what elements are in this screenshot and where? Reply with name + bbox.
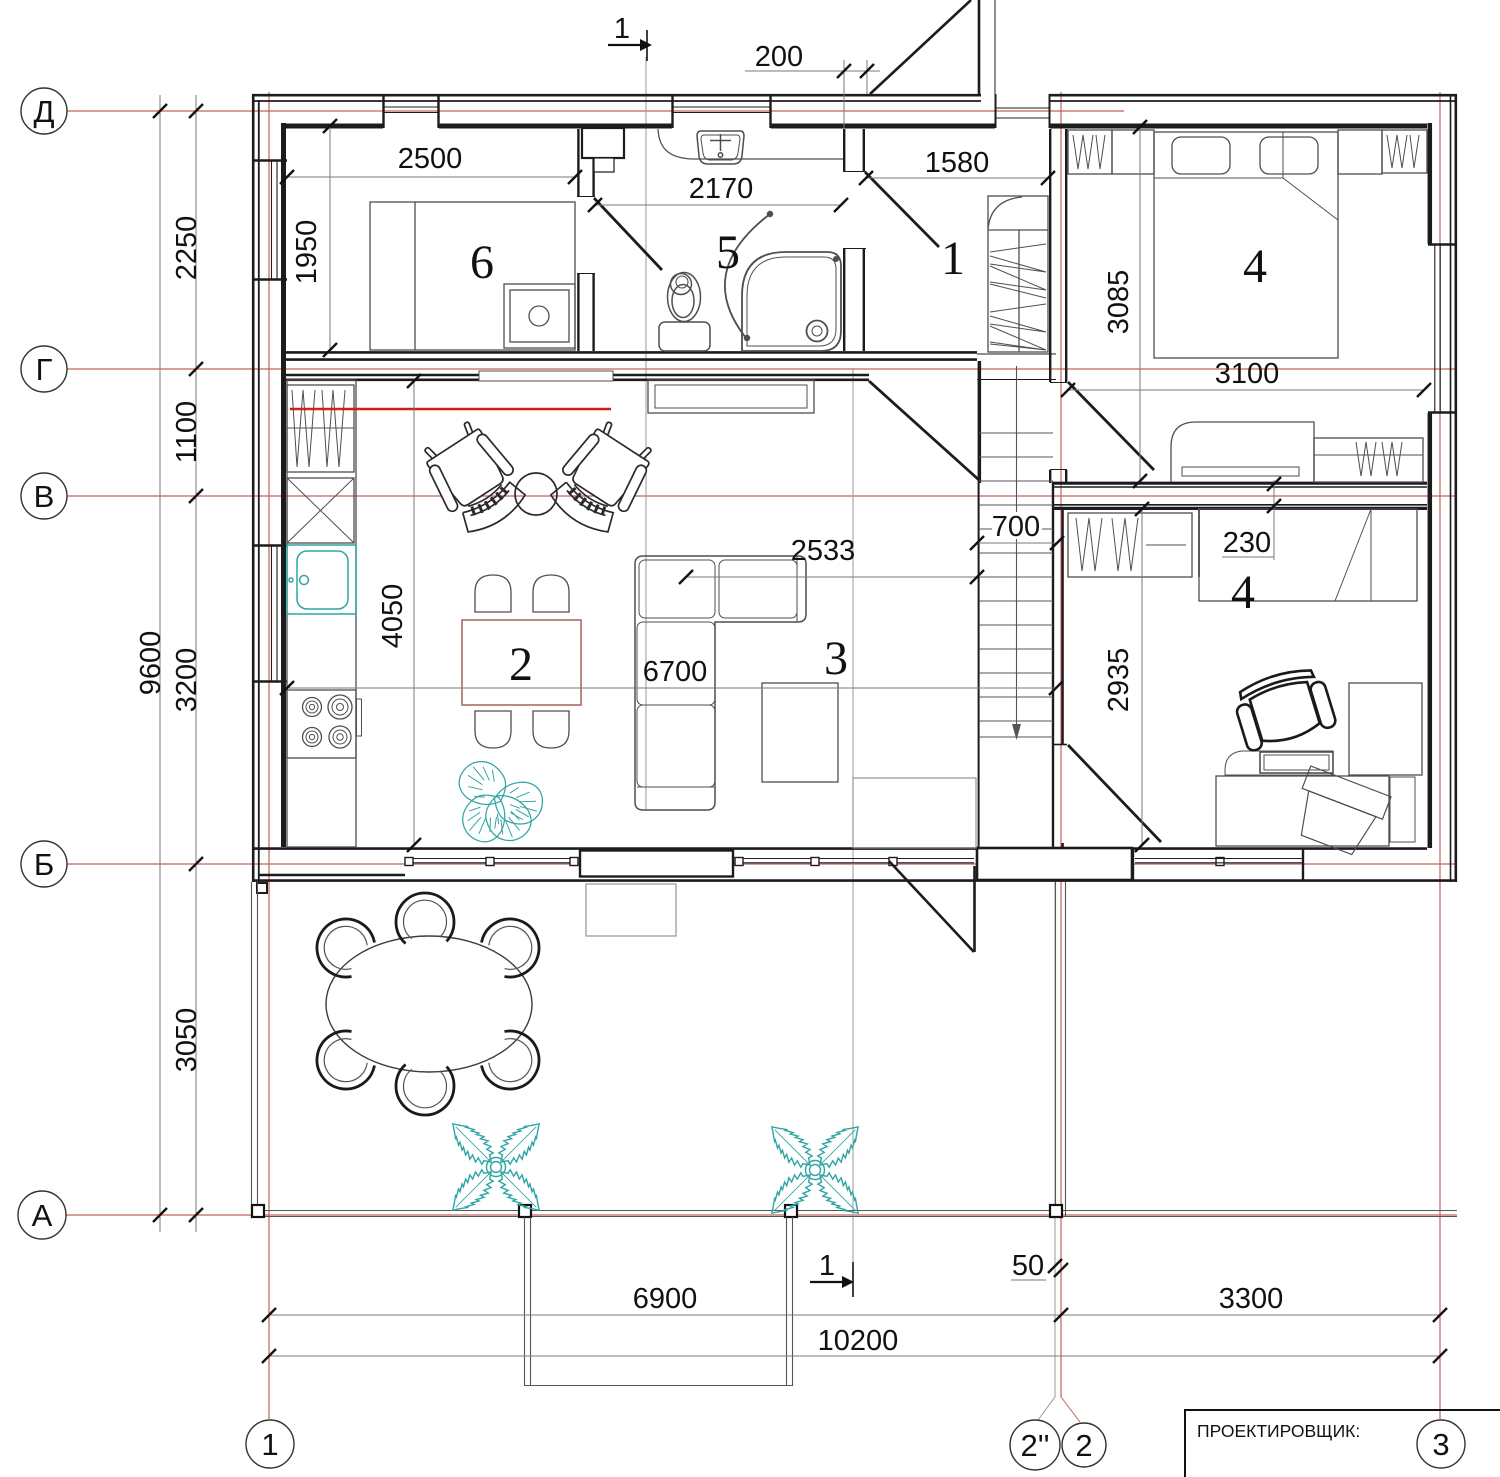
svg-text:5: 5 [716,226,740,279]
svg-text:1: 1 [614,13,630,45]
svg-text:Б: Б [34,847,54,882]
svg-text:1100: 1100 [171,401,203,463]
svg-text:3200: 3200 [171,648,203,713]
svg-text:3: 3 [824,632,848,685]
svg-text:6900: 6900 [633,1283,698,1315]
svg-text:Д: Д [34,94,55,129]
svg-text:9600: 9600 [135,631,167,696]
svg-text:2533: 2533 [791,535,856,567]
svg-text:ПРОЕКТИРОВЩИК:: ПРОЕКТИРОВЩИК: [1197,1421,1360,1441]
svg-text:1950: 1950 [291,220,323,285]
svg-text:Г: Г [36,352,53,387]
svg-text:6700: 6700 [643,656,708,688]
svg-text:10200: 10200 [818,1325,899,1357]
svg-text:200: 200 [755,41,803,73]
svg-text:2170: 2170 [689,173,754,205]
svg-text:50: 50 [1012,1250,1044,1282]
svg-text:2500: 2500 [398,143,463,175]
svg-text:3050: 3050 [171,1008,203,1073]
svg-text:700: 700 [992,511,1040,543]
svg-text:2: 2 [509,638,533,691]
svg-text:А: А [32,1198,53,1233]
svg-text:4: 4 [1231,566,1255,619]
svg-text:6: 6 [470,236,494,289]
svg-text:2: 2 [1075,1428,1092,1463]
svg-text:3300: 3300 [1219,1283,1284,1315]
svg-text:4050: 4050 [377,584,409,649]
svg-text:3100: 3100 [1215,358,1280,390]
svg-text:2'': 2'' [1020,1428,1049,1463]
svg-text:1: 1 [261,1427,278,1462]
svg-text:2935: 2935 [1103,648,1135,713]
svg-text:1: 1 [941,232,965,285]
svg-text:1: 1 [819,1250,835,1282]
svg-text:1580: 1580 [925,147,990,179]
svg-text:3: 3 [1432,1427,1449,1462]
svg-text:В: В [34,479,55,514]
svg-text:2250: 2250 [171,216,203,281]
svg-text:230: 230 [1223,527,1271,559]
svg-text:3085: 3085 [1103,270,1135,335]
svg-text:4: 4 [1243,240,1267,293]
